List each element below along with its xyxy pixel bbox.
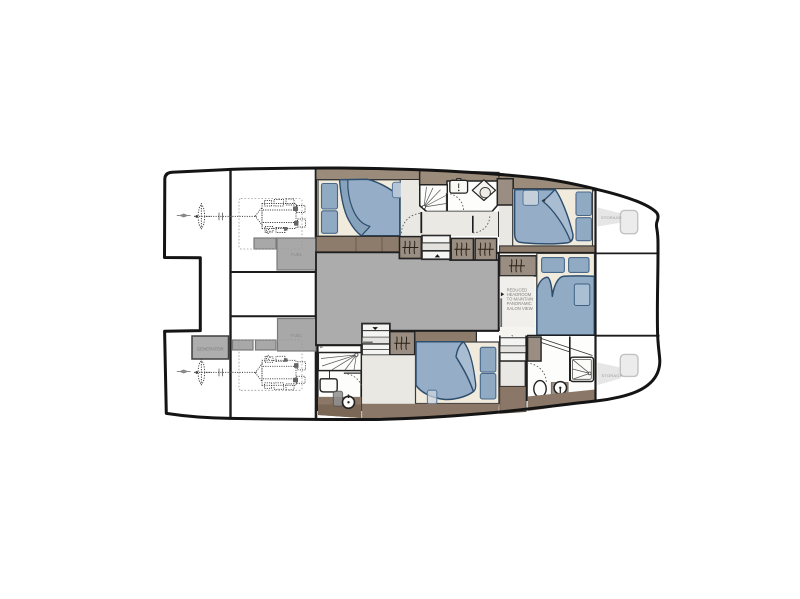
svg-text:SALON VIEW: SALON VIEW	[507, 306, 533, 311]
svg-text:STORAGE: STORAGE	[601, 215, 622, 220]
svg-text:FUEL: FUEL	[291, 252, 303, 257]
svg-text:GENERATOR: GENERATOR	[197, 347, 224, 352]
svg-text:STORAGE: STORAGE	[602, 373, 623, 378]
svg-text:FUEL: FUEL	[291, 333, 303, 338]
